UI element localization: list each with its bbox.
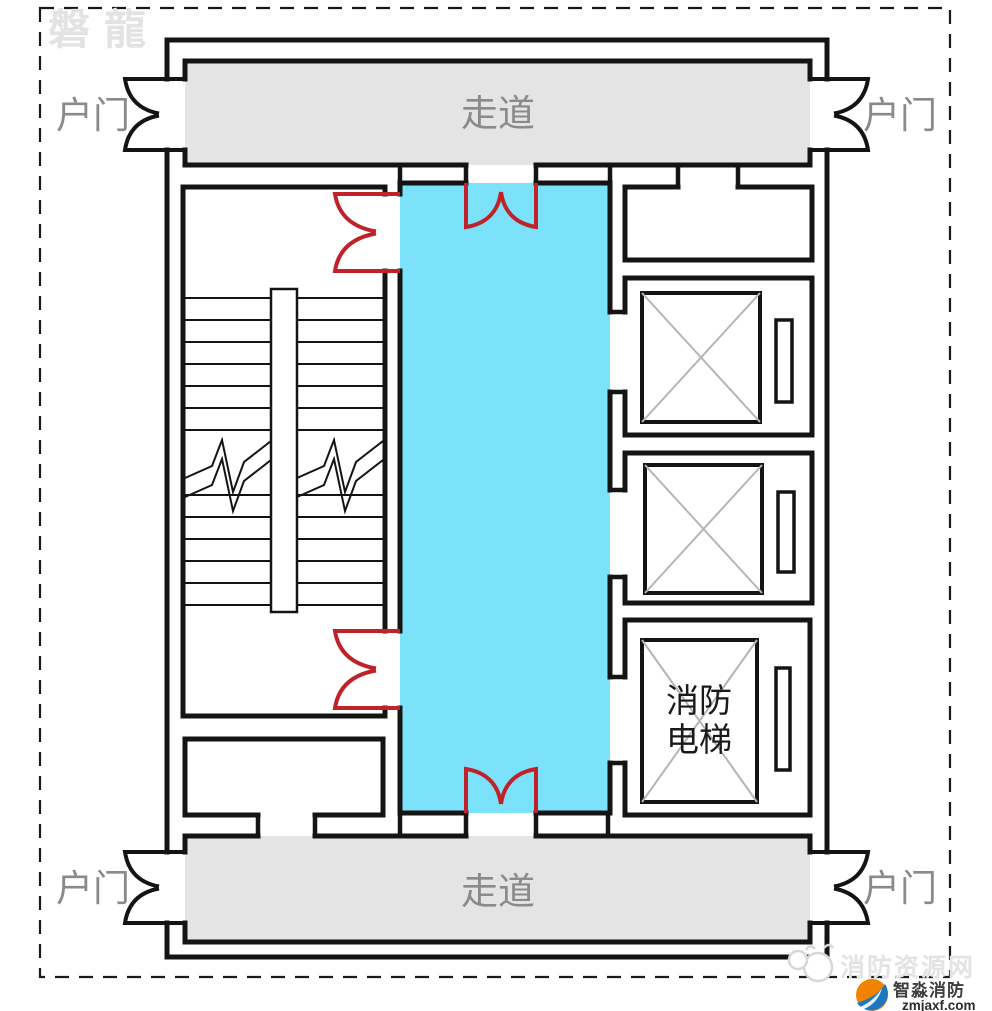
entry-label-bottom-left: 户门: [56, 868, 130, 909]
fire-elevator-label-line1: 消防: [666, 682, 732, 719]
entry-door-top-right-swing: [811, 79, 868, 150]
fire-door-stair-top: [335, 194, 400, 271]
stair-stringer: [271, 289, 297, 612]
corridor-top-label: 走道: [461, 93, 535, 134]
entry-door-bottom-right-swing: [811, 852, 868, 923]
fire-elevator-label-line2: 电梯: [666, 721, 732, 758]
entry-label-top-right: 户门: [863, 95, 937, 136]
top-right-room-walls: [625, 187, 812, 260]
watermark-panlong: 磐龍: [48, 6, 160, 53]
lobby-fill: [400, 183, 610, 813]
entry-label-bottom-right: 户门: [863, 868, 937, 909]
entry-door-bottom-left-swing: [125, 852, 184, 923]
zhimiao-logo-icon: [856, 979, 888, 1011]
fire-elevator: 消防 电梯: [642, 640, 790, 802]
footer-watermark: 消防资源网: [789, 945, 975, 982]
elevator-2-counterweight: [778, 492, 794, 572]
entry-label-top-left: 户门: [56, 95, 130, 136]
zhimiao-logo-name: 智淼消防: [893, 980, 965, 1000]
floor-plan-page: 磐龍 消防: [0, 0, 992, 1011]
lower-left-room-walls: [185, 739, 383, 815]
fire-door-stair-bottom: [335, 631, 400, 708]
zhimiao-logo: 智淼消防 zmjaxf.com: [856, 979, 976, 1011]
footer-watermark-text: 消防资源网: [840, 954, 975, 982]
elevator-1: [642, 293, 792, 422]
zhimiao-logo-site: zmjaxf.com: [902, 998, 976, 1011]
floor-plan-figure: 磐龍 消防: [0, 0, 992, 1011]
elevator-1-counterweight: [776, 320, 792, 402]
elevator-2: [645, 465, 794, 593]
staircase: [185, 289, 383, 612]
entry-door-top-left-swing: [125, 79, 184, 150]
fire-elevator-counterweight: [776, 668, 790, 770]
corridor-bottom-label: 走道: [461, 871, 535, 912]
